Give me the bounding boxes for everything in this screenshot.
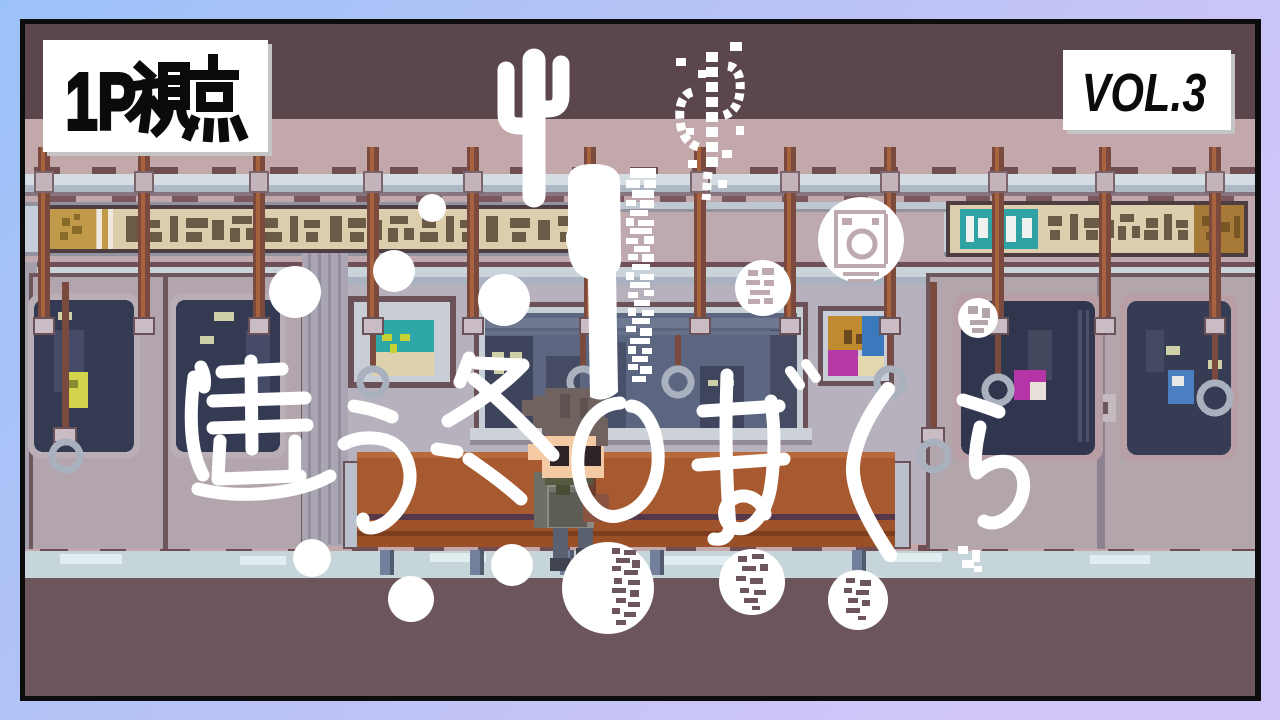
svg-text:VOL.3: VOL.3 (1082, 64, 1207, 124)
svg-text:1P: 1P (66, 57, 136, 147)
